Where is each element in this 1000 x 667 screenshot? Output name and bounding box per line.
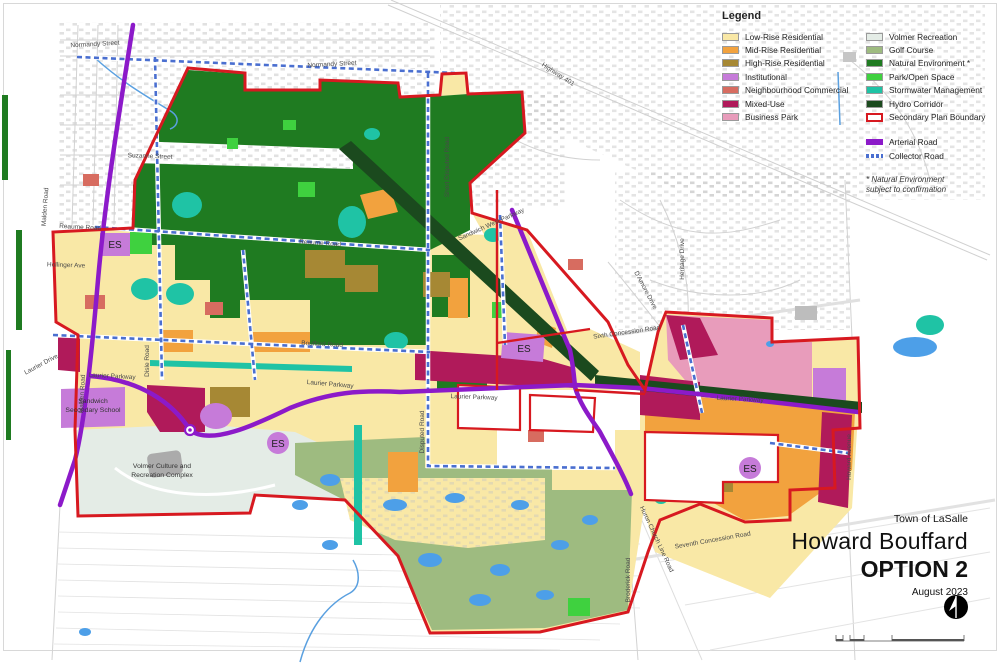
mixed-use-swatch xyxy=(722,100,739,108)
institutional-swatch xyxy=(722,73,739,81)
natural-environment-swatch xyxy=(866,59,883,67)
legend-item-arterial-road: Arterial Road xyxy=(866,136,992,149)
legend-column-right: Volmer Recreation Golf Course Natural En… xyxy=(866,30,992,196)
legend-item-mixed-use: Mixed-Use xyxy=(722,97,862,110)
legend-item-volmer: Volmer Recreation xyxy=(866,30,992,43)
legend-item-stormwater: Stormwater Management xyxy=(866,84,992,97)
es-marker-wedge-label: ES xyxy=(517,344,531,355)
legend-column-left: Low-Rise Residential Mid-Rise Residentia… xyxy=(722,30,862,124)
legend: Legend Low-Rise Residential Mid-Rise Res… xyxy=(716,10,992,26)
street-label-howard-avenue: Howard Avenue xyxy=(846,434,853,480)
street-label-malden-1: Malden Road xyxy=(41,187,51,226)
legend-item-mid-rise: Mid-Rise Residential xyxy=(722,43,862,56)
legend-item-collector-road: Collector Road xyxy=(866,149,992,162)
street-label-disputed: Disputed Road xyxy=(419,410,426,453)
north-arrow-icon xyxy=(941,593,973,623)
legend-item-neighbourhood-commercial: Neighbourhood Commercial xyxy=(722,84,862,97)
volmer-recreation-swatch xyxy=(866,33,883,41)
business-park-swatch xyxy=(722,113,739,121)
legend-item-golf: Golf Course xyxy=(866,43,992,56)
es-marker-circle-west-label: ES xyxy=(271,439,285,450)
roundabout xyxy=(185,425,195,435)
title-block: Town of LaSalle Howard Bouffard OPTION 2… xyxy=(791,513,968,598)
legend-item-natural-environment: Natural Environment * xyxy=(866,57,992,70)
street-label-disle: Disle Road xyxy=(144,345,151,377)
hydro-corridor-swatch xyxy=(866,100,883,108)
legend-item-boundary: Secondary Plan Boundary xyxy=(866,110,992,123)
golf-course-swatch xyxy=(866,46,883,54)
school-label-line2: Secondary School xyxy=(65,407,121,414)
plan-option: OPTION 2 xyxy=(791,556,968,583)
legend-title: Legend xyxy=(722,10,992,22)
legend-item-high-rise: High-Rise Residential xyxy=(722,57,862,70)
school-label-line1: Sandwich xyxy=(78,398,108,405)
secondary-plan-boundary-swatch xyxy=(866,113,883,122)
volmer-label-line2: Recreation Complex xyxy=(131,472,193,479)
legend-item-park-open-space: Park/Open Space xyxy=(866,70,992,83)
street-label-laurier-drive: Laurier Drive xyxy=(23,353,59,377)
scale-bar xyxy=(834,628,970,648)
park-open-space-swatch xyxy=(866,73,883,81)
street-label-broderick: Broderick Road xyxy=(625,557,632,602)
mid-rise-swatch xyxy=(722,46,739,54)
volmer-label-line1: Volmer Culture and xyxy=(133,463,191,470)
street-label-heritage: Heritage Drive xyxy=(679,238,686,280)
stormwater-swatch xyxy=(866,86,883,94)
es-marker-circle-east-label: ES xyxy=(743,464,757,475)
es-marker-square-label: ES xyxy=(108,240,122,251)
legend-note: * Natural Environment subject to confirm… xyxy=(866,175,992,197)
arterial-road-swatch xyxy=(866,139,883,145)
neighbourhood-commercial-swatch xyxy=(722,86,739,94)
low-rise-swatch xyxy=(722,33,739,41)
municipality-name: Town of LaSalle xyxy=(791,513,968,525)
legend-item-institutional: Institutional xyxy=(722,70,862,83)
legend-item-business-park: Business Park xyxy=(722,110,862,123)
high-rise-swatch xyxy=(722,59,739,67)
plan-title: Howard Bouffard xyxy=(791,528,968,555)
legend-item-hydro-corridor: Hydro Corridor xyxy=(866,97,992,110)
map-page: Normandy Street Normandy Street Suzanne … xyxy=(0,0,1000,667)
legend-item-low-rise: Low-Rise Residential xyxy=(722,30,862,43)
street-label-hollinger: Hollinger Ave xyxy=(47,261,86,269)
collector-road-swatch xyxy=(866,154,883,158)
street-label-short-disputed: Short Disputed Road xyxy=(444,136,451,197)
